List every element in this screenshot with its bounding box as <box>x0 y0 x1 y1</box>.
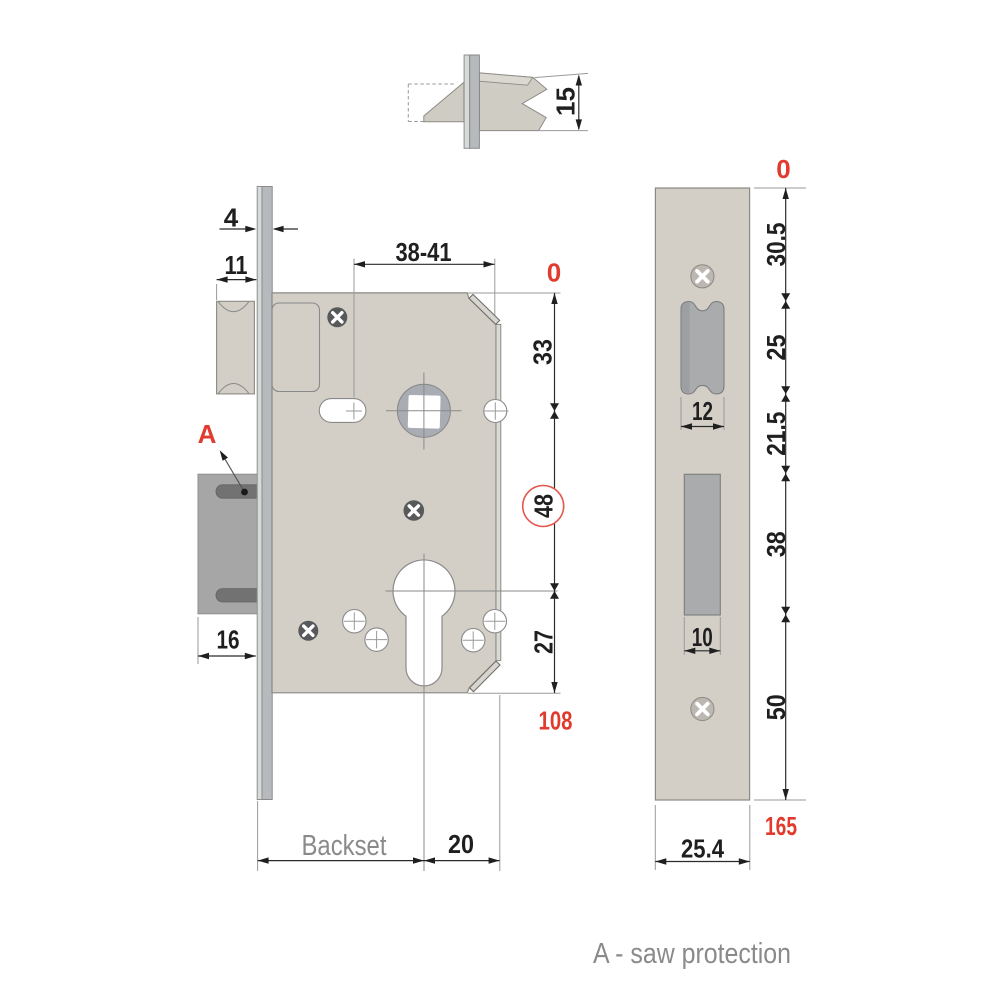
svg-text:27: 27 <box>529 630 559 654</box>
svg-text:16: 16 <box>217 625 240 655</box>
svg-text:15: 15 <box>551 87 581 116</box>
svg-text:38-41: 38-41 <box>396 237 452 267</box>
svg-text:25: 25 <box>761 335 791 361</box>
svg-text:30.5: 30.5 <box>761 223 791 267</box>
svg-text:Backset: Backset <box>302 830 387 862</box>
svg-text:A - saw protection: A - saw protection <box>593 938 791 970</box>
svg-text:21.5: 21.5 <box>761 412 791 456</box>
svg-text:11: 11 <box>225 250 248 280</box>
svg-text:33: 33 <box>528 339 558 365</box>
svg-text:0: 0 <box>776 154 790 184</box>
svg-text:108: 108 <box>539 706 573 736</box>
svg-text:165: 165 <box>765 811 797 841</box>
svg-text:48: 48 <box>529 494 559 518</box>
svg-text:A: A <box>198 419 217 449</box>
svg-text:4: 4 <box>224 203 239 233</box>
svg-text:12: 12 <box>692 396 713 426</box>
svg-text:20: 20 <box>448 829 474 859</box>
svg-text:0: 0 <box>547 258 561 288</box>
svg-text:50: 50 <box>761 694 791 720</box>
svg-text:25.4: 25.4 <box>681 834 724 864</box>
svg-text:10: 10 <box>692 622 713 652</box>
svg-text:38: 38 <box>761 531 791 557</box>
